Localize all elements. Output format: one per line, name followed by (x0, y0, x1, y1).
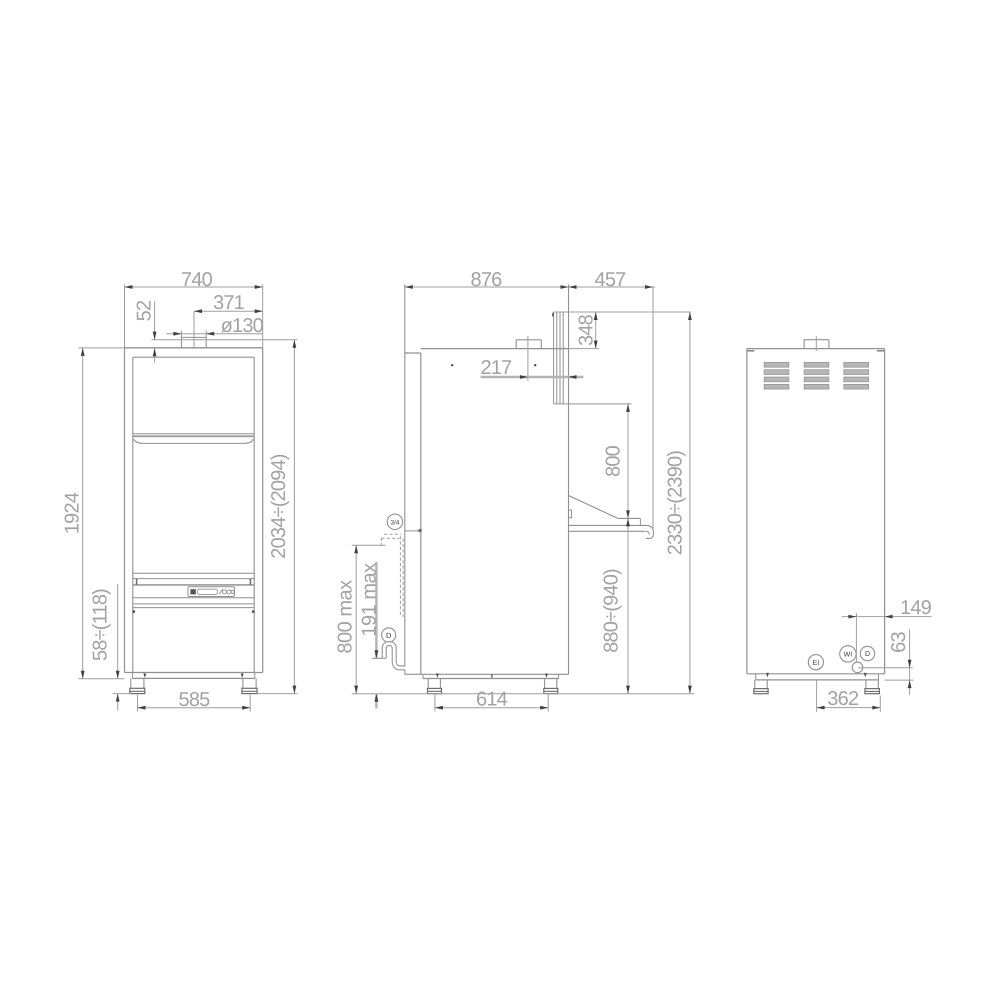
svg-text:58÷(118): 58÷(118) (90, 589, 112, 661)
svg-text:614: 614 (476, 689, 508, 711)
svg-text:585: 585 (179, 689, 211, 711)
svg-text:2034÷(2094): 2034÷(2094) (268, 454, 290, 559)
svg-text:ø130: ø130 (221, 315, 264, 337)
svg-text:880÷(940): 880÷(940) (601, 569, 623, 653)
svg-text:63: 63 (888, 632, 910, 653)
svg-text:876: 876 (471, 269, 503, 291)
svg-text:WI: WI (844, 652, 853, 659)
svg-text:EI: EI (813, 660, 820, 667)
svg-text:D: D (865, 651, 870, 658)
svg-text:217: 217 (481, 357, 513, 379)
svg-text:52: 52 (134, 300, 156, 321)
svg-text:3/4: 3/4 (390, 519, 399, 526)
svg-text:348: 348 (576, 314, 598, 346)
svg-text:800: 800 (603, 445, 625, 477)
svg-text:800 max: 800 max (335, 580, 357, 654)
svg-text:191 max: 191 max (358, 563, 380, 637)
svg-text:371: 371 (213, 292, 245, 314)
svg-text:2330÷(2390): 2330÷(2390) (665, 451, 687, 556)
svg-text:740: 740 (181, 269, 213, 291)
svg-text:149: 149 (900, 597, 932, 619)
svg-text:1924: 1924 (62, 492, 84, 534)
svg-text:D: D (386, 631, 392, 640)
svg-text:457: 457 (595, 269, 627, 291)
svg-text:362: 362 (827, 688, 859, 710)
